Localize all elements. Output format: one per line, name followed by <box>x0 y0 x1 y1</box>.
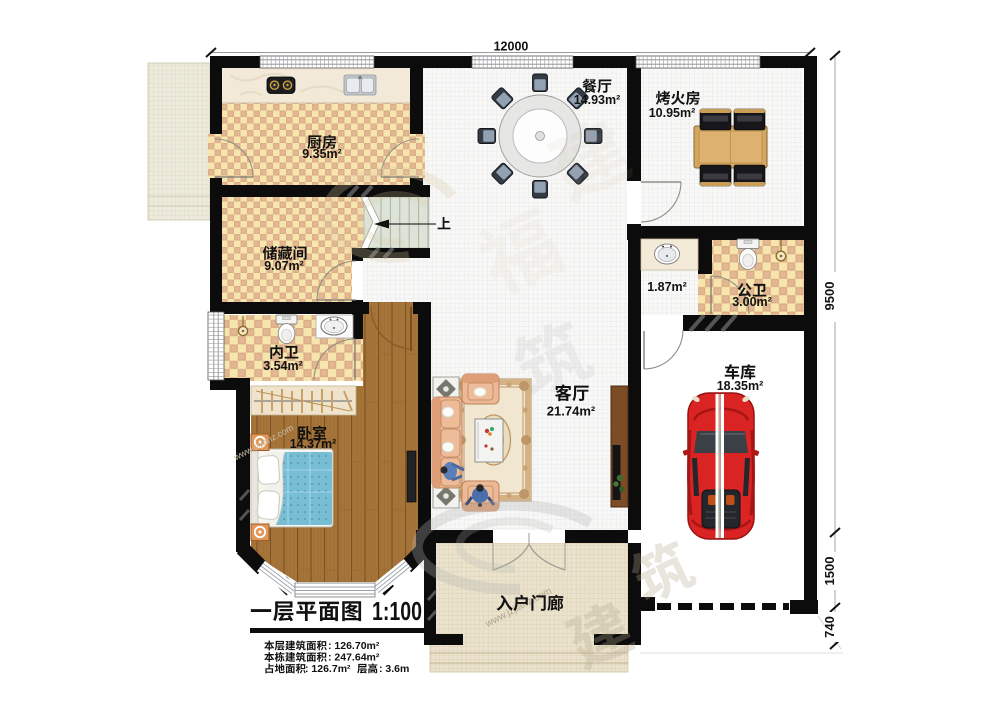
svg-text:1500: 1500 <box>822 557 837 586</box>
svg-text:9500: 9500 <box>822 282 837 311</box>
svg-text:: 126.70m²: : 126.70m² <box>328 640 380 652</box>
svg-text:740: 740 <box>822 616 837 638</box>
svg-text:14.37m²: 14.37m² <box>290 437 337 451</box>
svg-text:3.00m²: 3.00m² <box>732 295 772 309</box>
svg-text:21.74m²: 21.74m² <box>547 404 596 419</box>
svg-text:: 126.7m²: : 126.7m² <box>305 663 351 675</box>
svg-text:1:100: 1:100 <box>372 596 422 626</box>
svg-text:18.35m²: 18.35m² <box>717 379 764 393</box>
svg-text:14.93m²: 14.93m² <box>574 93 621 107</box>
svg-text:12000: 12000 <box>494 40 529 54</box>
svg-text:10.95m²: 10.95m² <box>649 106 696 120</box>
svg-text:3.54m²: 3.54m² <box>263 359 303 373</box>
svg-text:: 247.64m²: : 247.64m² <box>328 652 380 664</box>
svg-text:1.87m²: 1.87m² <box>647 280 687 294</box>
svg-text:9.35m²: 9.35m² <box>302 147 342 161</box>
svg-text:: 3.6m: : 3.6m <box>379 663 409 675</box>
svg-text:9.07m²: 9.07m² <box>264 259 304 273</box>
